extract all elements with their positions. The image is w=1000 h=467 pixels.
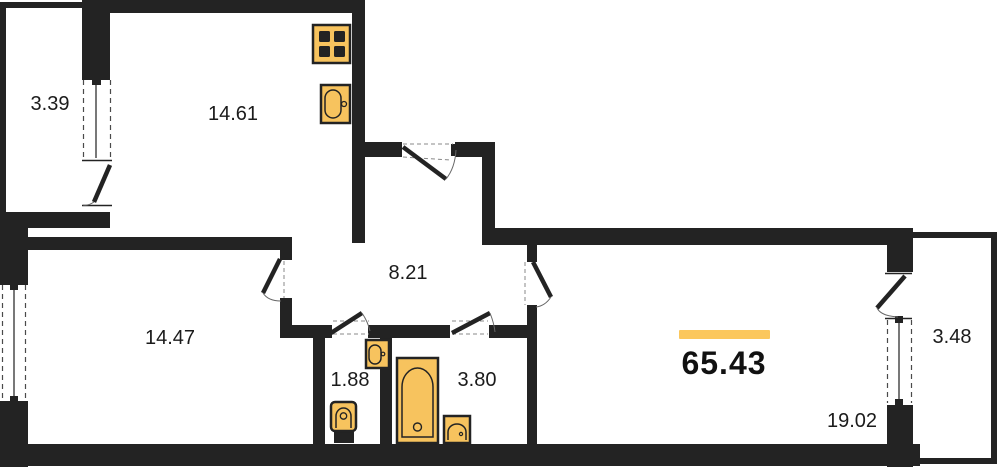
room-area-label-bedroom: 14.47 [135, 327, 205, 349]
window-bedroom [3, 283, 26, 403]
wall-segment [0, 2, 85, 8]
floor-plan: 3.39 14.61 8.21 14.47 1.88 3.80 19.02 3.… [0, 0, 1000, 467]
wall-segment [352, 142, 402, 157]
room-area-label-wc: 1.88 [322, 369, 378, 391]
wall-segment [280, 298, 292, 328]
floor-plan-drawing [0, 0, 1000, 467]
wall-segment [887, 240, 913, 272]
wall-segment [25, 237, 292, 250]
door-living-room [525, 262, 551, 307]
basin-icon [444, 416, 470, 443]
walls [0, 0, 997, 467]
room-area-label-balcony-right: 3.48 [924, 326, 980, 348]
door-wc [331, 313, 370, 334]
wall-segment [280, 325, 332, 338]
kitchen-sink-icon [321, 85, 350, 123]
wall-segment [352, 0, 365, 243]
room-area-label-hallway: 8.21 [378, 262, 438, 284]
door-balcony-right [877, 276, 905, 317]
wall-segment [0, 212, 110, 228]
room-area-label-balcony-left: 3.39 [20, 93, 80, 115]
total-area-label: 65.43 [654, 345, 794, 382]
door-bathroom [452, 313, 495, 334]
wall-segment [482, 228, 913, 245]
total-area-accent-bar [679, 330, 770, 339]
wall-segment [527, 245, 537, 262]
wall-segment [527, 305, 537, 445]
toilet-icon [331, 402, 356, 443]
bathtub-icon [397, 358, 438, 443]
door-entrance [403, 144, 456, 179]
wall-segment [313, 338, 325, 445]
door-balcony-left [83, 165, 110, 205]
wall-segment [887, 405, 913, 467]
window-balcony-left [82, 78, 112, 206]
washbasin-icon [366, 340, 389, 368]
wall-segment [0, 226, 28, 285]
room-area-label-kitchen: 14.61 [198, 103, 268, 125]
stove-icon [313, 25, 350, 63]
wall-segment [913, 458, 997, 464]
wall-segment [913, 232, 997, 238]
room-area-label-living-room: 19.02 [817, 410, 887, 432]
wall-segment [991, 232, 997, 464]
room-area-label-bathroom: 3.80 [449, 369, 505, 391]
wall-segment [105, 0, 365, 13]
door-bedroom [263, 259, 284, 301]
wall-segment [0, 2, 6, 218]
wall-segment [0, 444, 920, 466]
wall-segment [280, 248, 292, 260]
